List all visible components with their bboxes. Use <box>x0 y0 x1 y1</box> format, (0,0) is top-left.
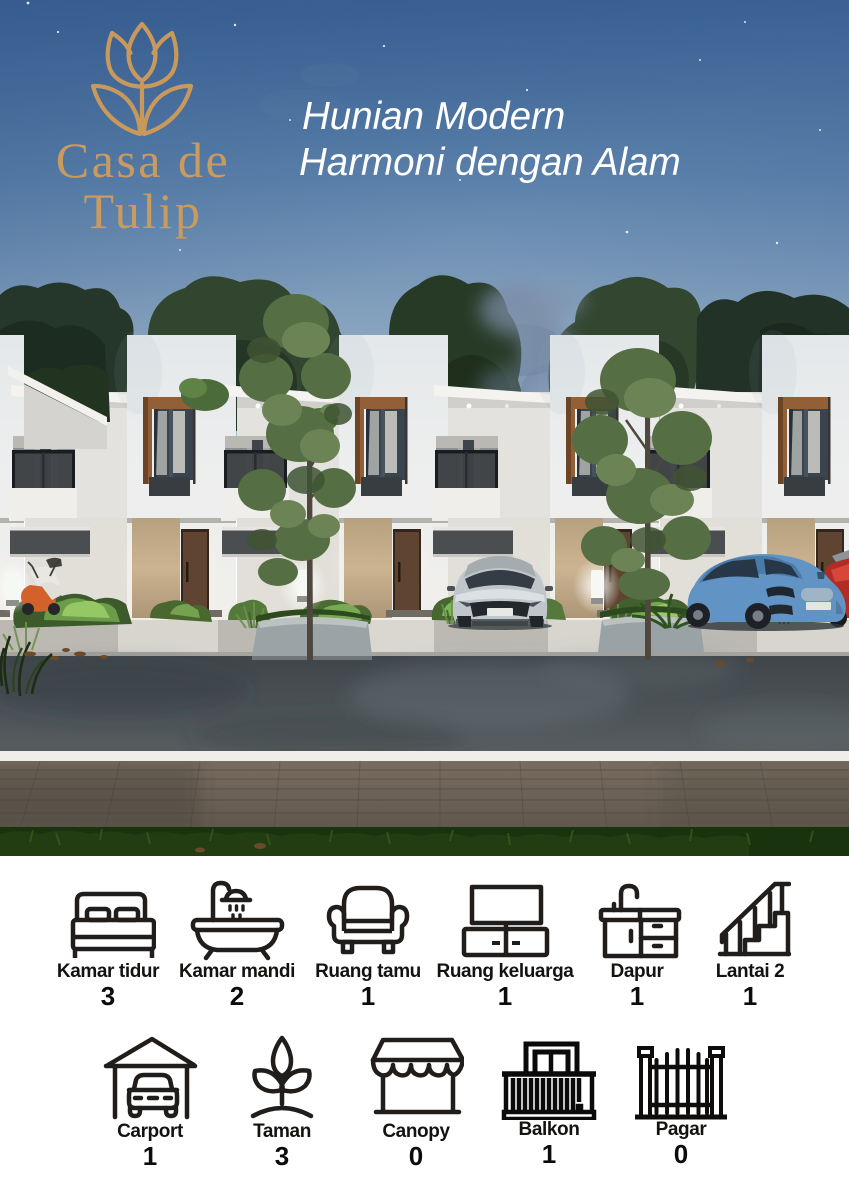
svg-text:Harmoni dengan Alam: Harmoni dengan Alam <box>299 141 681 184</box>
svg-text:Tulip: Tulip <box>83 183 202 239</box>
svg-text:Casa de: Casa de <box>56 132 230 188</box>
svg-text:Hunian Modern: Hunian Modern <box>302 95 565 138</box>
